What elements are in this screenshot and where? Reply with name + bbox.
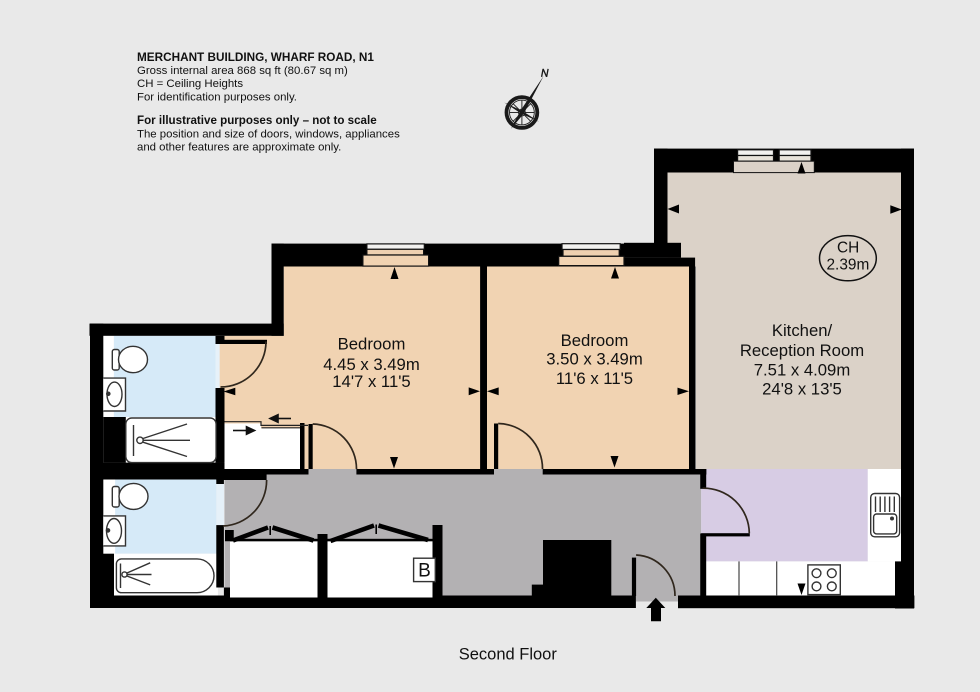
svg-text:Second Floor: Second Floor	[459, 646, 558, 664]
svg-text:24'8 x 13'5: 24'8 x 13'5	[762, 380, 842, 399]
svg-text:Gross internal area 868 sq ft: Gross internal area 868 sq ft (80.67 sq …	[137, 65, 348, 77]
svg-text:CH = Ceiling Heights: CH = Ceiling Heights	[137, 78, 243, 90]
svg-text:CH: CH	[837, 240, 859, 257]
svg-text:7.51 x 4.09m: 7.51 x 4.09m	[754, 360, 850, 379]
svg-text:and other features are approxi: and other features are approximate only.	[137, 141, 341, 153]
svg-text:2.39m: 2.39m	[827, 256, 870, 273]
svg-text:Reception Room: Reception Room	[740, 341, 864, 360]
svg-text:MERCHANT BUILDING, WHARF ROAD,: MERCHANT BUILDING, WHARF ROAD, N1	[137, 51, 374, 64]
svg-text:For identification purposes on: For identification purposes only.	[137, 91, 297, 103]
svg-text:Kitchen/: Kitchen/	[772, 321, 833, 340]
svg-text:4.45 x 3.49m: 4.45 x 3.49m	[323, 355, 419, 374]
svg-text:Bedroom: Bedroom	[338, 334, 406, 353]
svg-text:11'6 x 11'5: 11'6 x 11'5	[556, 369, 633, 388]
svg-text:3.50 x 3.49m: 3.50 x 3.49m	[546, 350, 642, 369]
svg-text:The position and size of doors: The position and size of doors, windows,…	[137, 128, 400, 140]
svg-text:14'7 x 11'5: 14'7 x 11'5	[332, 372, 410, 391]
svg-text:For illustrative purposes only: For illustrative purposes only – not to …	[137, 114, 377, 127]
svg-text:Bedroom: Bedroom	[561, 331, 629, 350]
svg-text:B: B	[418, 561, 431, 582]
